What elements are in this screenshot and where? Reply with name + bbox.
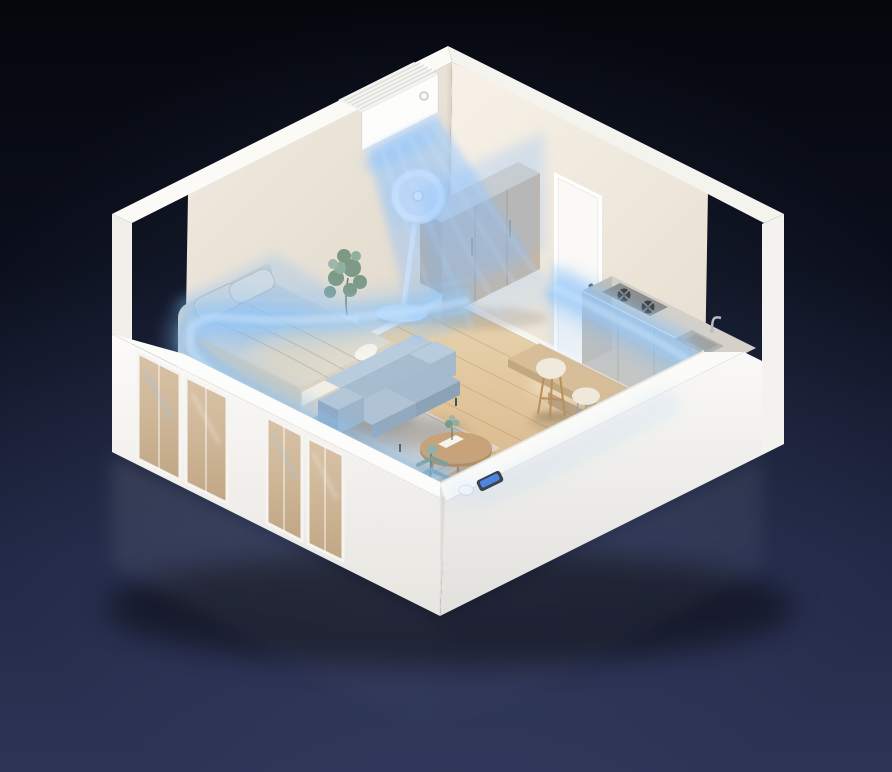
left-wall-end-cap <box>112 214 132 344</box>
scene-illustration: Isometric cutaway room showing air condi… <box>0 0 892 772</box>
stool-seat <box>536 358 566 378</box>
window-pane <box>267 417 302 541</box>
stool-seat <box>572 387 600 405</box>
right-wall-end-cap <box>762 214 784 455</box>
window-pane <box>186 377 227 503</box>
window-pane <box>138 353 180 480</box>
ac-indicator <box>420 92 428 100</box>
window-pane <box>308 438 343 561</box>
isometric-room-svg: Isometric cutaway room showing air condi… <box>0 0 892 772</box>
